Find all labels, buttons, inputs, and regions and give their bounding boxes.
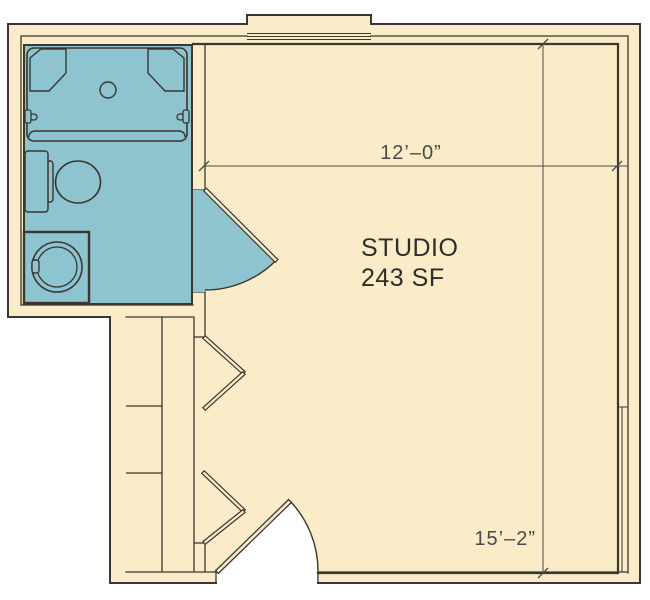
washer (24, 232, 89, 303)
room-label-area: 243 SF (361, 264, 445, 292)
bathroom-door-gap-fill (193, 190, 205, 292)
dimension-width-label: 12’–0” (380, 142, 442, 164)
toilet-tank (25, 151, 48, 212)
floor-plan: 12’–0” 15’–2” STUDIO 243 SF (0, 0, 650, 600)
washer-latch-icon (32, 260, 39, 273)
dimension-height-label: 15’–2” (474, 528, 536, 550)
floor-plan-drawing: 12’–0” 15’–2” STUDIO 243 SF (0, 0, 650, 600)
toilet-bowl (56, 161, 101, 203)
room-label-name: STUDIO (361, 234, 458, 262)
